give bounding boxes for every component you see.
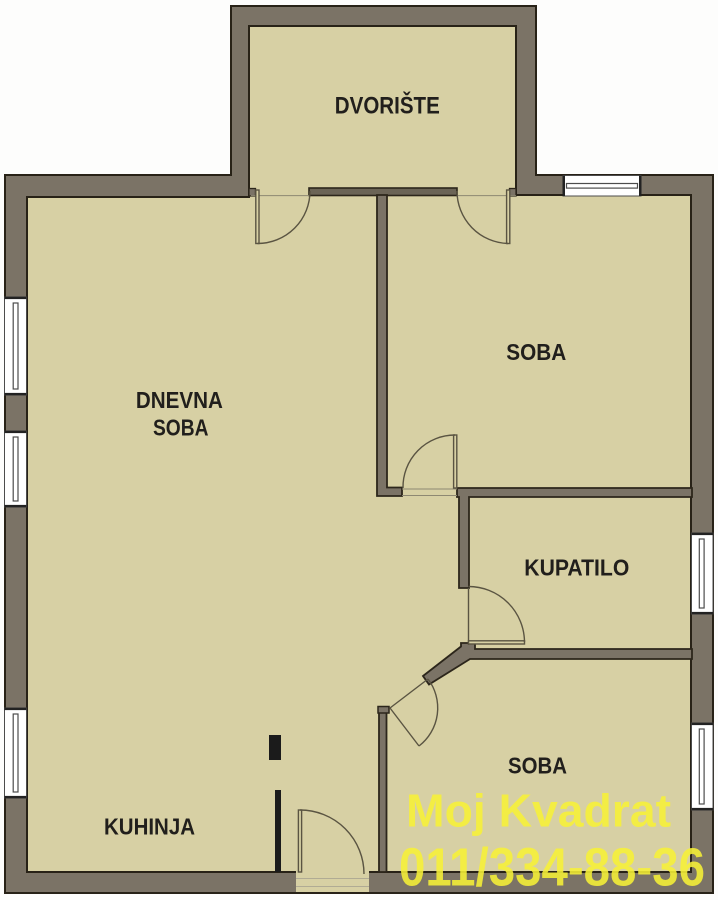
svg-text:SOBA: SOBA (506, 339, 566, 365)
svg-text:SOBA: SOBA (153, 415, 209, 441)
svg-text:DVORIŠTE: DVORIŠTE (335, 91, 440, 119)
svg-text:SOBA: SOBA (508, 753, 567, 779)
svg-text:011/334-88-36: 011/334-88-36 (399, 838, 705, 898)
svg-text:KUHINJA: KUHINJA (104, 814, 195, 840)
svg-text:Moj Kvadrat: Moj Kvadrat (406, 785, 671, 837)
svg-text:DNEVNA: DNEVNA (136, 387, 223, 413)
svg-text:KUPATILO: KUPATILO (524, 555, 629, 581)
